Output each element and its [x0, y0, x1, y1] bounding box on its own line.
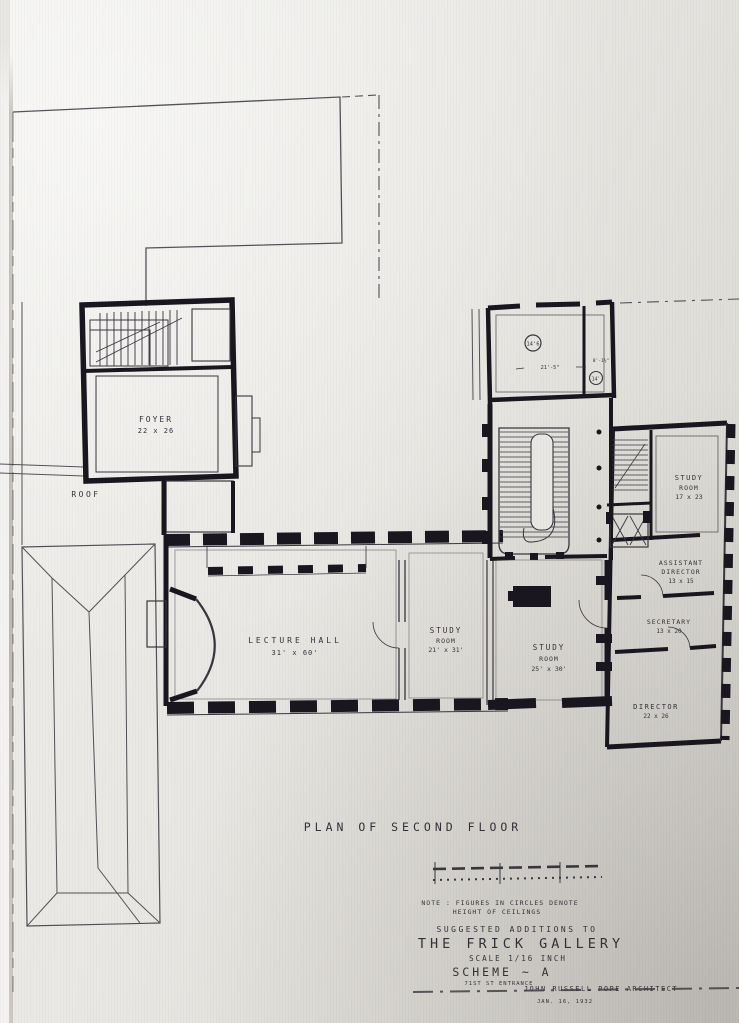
ceiling-annotations: 14'6 14' 21'-5" 8'-1½" [516, 335, 609, 385]
project-name: THE FRICK GALLERY [418, 936, 624, 952]
study-room-center-block [488, 560, 612, 705]
partition-wall [373, 560, 405, 700]
dimension-label: 21'-5" [541, 365, 560, 371]
note-line-1: NOTE : FIGURES IN CIRCLES DENOTE [421, 899, 578, 907]
room-label-lecture-hall: LECTURE HALL [248, 636, 342, 645]
foyer-stairs [90, 310, 182, 366]
stair-hall-block: 14'6 14' 21'-5" 8'-1½" [482, 302, 614, 560]
room-label-assistant-director-2: DIRECTOR [661, 568, 700, 576]
room-label-study-east-2: ROOM [679, 484, 699, 492]
door-swing-arc [579, 600, 607, 628]
stair-newel [531, 434, 553, 530]
room-label-study-center-2: ROOM [539, 655, 559, 663]
door-swing-arc [373, 622, 399, 648]
foyer-inner-line [96, 376, 218, 472]
hip-roof-plan [22, 544, 160, 926]
lecture-hall-block [147, 535, 493, 706]
date-label: JAN. 16, 1932 [537, 999, 593, 1005]
note-line-2: HEIGHT OF CEILINGS [453, 908, 541, 916]
room-label-roof: ROOF [71, 490, 100, 499]
foyer-east-bay-step [252, 418, 260, 452]
dimension-label: 8'-1½" [593, 357, 610, 364]
ceiling-height-value: 14'6 [526, 342, 539, 348]
study-west-wall [487, 560, 493, 705]
room-dims-lecture-hall: 31' x 60' [272, 649, 319, 657]
scale-bar [433, 862, 602, 884]
room-label-study-east: STUDY [675, 474, 704, 482]
room-dims-director: 22 x 26 [643, 713, 669, 720]
foyer-east-bay [236, 396, 252, 466]
main-staircase [499, 428, 569, 560]
photo-of-floor-plan-sheet: 14'6 14' 21'-5" 8'-1½" [0, 0, 739, 1023]
room-dims-study-west: 21' x 31' [428, 646, 463, 654]
room-dims-assistant-director: 13 x 15 [668, 578, 694, 585]
room-dims-foyer: 22 x 26 [138, 427, 175, 435]
room-label-study-center: STUDY [533, 643, 566, 652]
east-wing-block [606, 423, 731, 747]
room-label-secretary: SECRETARY [647, 618, 691, 626]
room-label-study-west-2: ROOM [436, 637, 456, 645]
room-dims-secretary: 13 x 20 [656, 628, 682, 635]
scheme-label: SCHEME ~ A [452, 965, 551, 979]
property-line-top-right [620, 299, 739, 303]
room-label-director: DIRECTOR [633, 703, 679, 711]
foyer-side-room [192, 309, 230, 361]
floor-plan-drawing: 14'6 14' 21'-5" 8'-1½" [0, 0, 739, 1023]
room-dims-study-east: 17 x 23 [675, 493, 702, 501]
room-label-study-west: STUDY [430, 626, 463, 635]
foyer-block [82, 300, 260, 481]
scale-note: SCALE 1/16 INCH [469, 954, 567, 963]
title-block: PLAN OF SECOND FLOOR NOTE : FIGURES IN C… [304, 820, 739, 1005]
duct-mass [508, 586, 551, 607]
room-label-foyer: FOYER [139, 415, 173, 424]
room-label-assistant-director: ASSISTANT [659, 559, 703, 567]
service-stair [612, 440, 648, 490]
court-connector [164, 481, 233, 535]
suggested-additions-line: SUGGESTED ADDITIONS TO [437, 925, 598, 934]
door-swing-arc [641, 575, 690, 648]
ceiling-height-value: 14' [592, 377, 601, 383]
room-dims-study-center: 25' x 30' [531, 665, 566, 673]
plan-title: PLAN OF SECOND FLOOR [304, 820, 522, 834]
